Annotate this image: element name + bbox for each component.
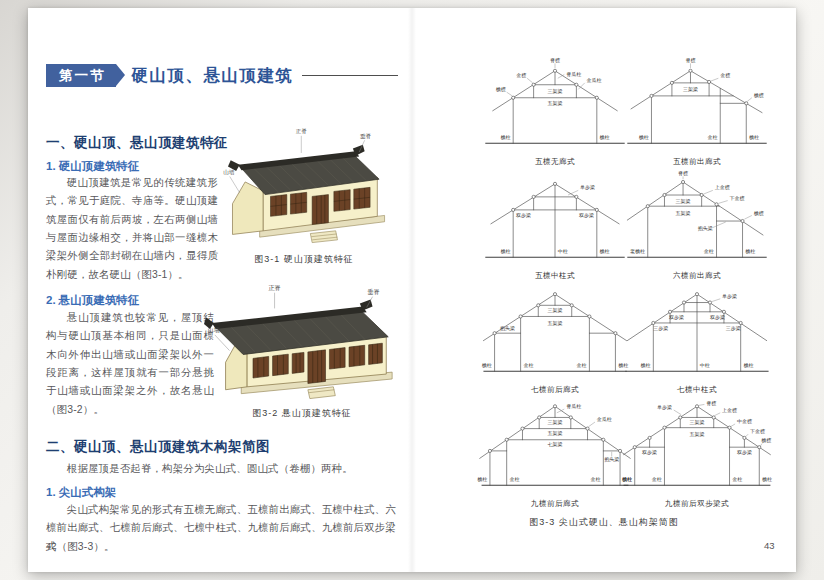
figure-3-2: 正脊 垂脊 山墙 图3-2 悬山顶建筑特征: [204, 280, 400, 420]
section-header: 第一节 硬山顶、悬山顶建筑: [46, 64, 398, 87]
label-1-step-beam: 单步梁: [657, 404, 672, 410]
label-1-step-beam: 单步梁: [580, 184, 595, 190]
label-2-step-beam: 双步梁: [516, 212, 531, 218]
label-eave-column: 檐柱: [641, 362, 651, 368]
label-eave-column: 檐柱: [622, 476, 632, 482]
left-page: 第一节 硬山顶、悬山顶建筑 一、硬山顶、悬山顶建筑特征 1. 硬山顶建筑特征 硬…: [28, 8, 412, 572]
truss-diagram-6-purlin-front-porch: 脊檩 上金檩 下金檩 檐檩 三架梁 五架梁 抱头梁 老檐柱 金柱 檐柱 六檩前出…: [618, 169, 776, 281]
label-ridge-purlin: 脊檩: [550, 57, 560, 63]
label-2-step-beam: 双步梁: [669, 314, 684, 320]
heading-features: 一、硬山顶、悬山顶建筑特征: [46, 134, 228, 152]
label-gable-wall: 山墙: [223, 169, 235, 176]
label-5-beam: 五架梁: [690, 431, 705, 437]
label-3-beam: 三架梁: [683, 86, 698, 92]
label-2-step-beam: 双步梁: [737, 449, 752, 455]
label-5-beam: 五架梁: [548, 100, 563, 106]
label-eave-purlin: 檐檩: [761, 437, 771, 443]
truss-drawing: 脊檩 上金檩 下金檩 檐檩 三架梁 五架梁 抱头梁 老檐柱 金柱 檐柱: [618, 169, 776, 266]
label-gold-column: 金柱: [523, 362, 533, 368]
label-main-ridge: 正脊: [269, 285, 281, 291]
paragraph-pointed-frame: 尖山式构架常见的形式有五檩无廊式、五檩前出廊式、五檩中柱式、六檩前出廊式、七檩前…: [46, 501, 396, 556]
figure-3-2-caption: 图3-2 悬山顶建筑特征: [204, 407, 400, 420]
label-ridge-purlin: 脊檩: [678, 170, 688, 176]
truss-diagram-7-purlin-center-column: 单步梁 双步梁 双步梁 三步梁 三步梁 檐柱 中柱 檐柱 七檩中柱式: [618, 283, 776, 395]
label-center-column: 中柱: [700, 362, 710, 368]
label-2-step-beam: 双步梁: [642, 449, 657, 455]
paragraph-overhanging-gable: 悬山顶建筑也较常见，屋顶结构与硬山顶基本相同，只是山面檩木向外伸出山墙或山面梁架…: [46, 309, 214, 419]
diagram-caption: 五檩中柱式: [476, 271, 634, 281]
label-ridge-purlin: 脊檩: [706, 400, 716, 406]
diagram-caption: 七檩中柱式: [618, 385, 776, 395]
diagram-caption: 五檩无廊式: [476, 157, 634, 167]
page-number-right: 43: [764, 540, 775, 551]
label-lower-gold-purlin: 下金檩: [750, 428, 765, 434]
label-3-beam: 三架梁: [548, 307, 563, 313]
label-5-beam: 五架梁: [548, 430, 563, 436]
label-upper-gold-purlin: 上金檩: [715, 184, 730, 190]
label-5-beam: 五架梁: [676, 210, 691, 216]
truss-drawing: 脊檩 单步梁 上金檩 中金檩 下金檩 檐檩 三架梁 五架梁 双步梁 双步梁 檐柱…: [618, 397, 776, 494]
label-upper-gold-purlin: 上金檩: [722, 407, 737, 413]
label-lower-gold-purlin: 下金檩: [730, 195, 745, 201]
label-3-beam: 三架梁: [676, 198, 691, 204]
truss-diagram-7-purlin-front-back-porch: 三架梁 五架梁 抱头梁 檐柱 金柱 金柱 檐柱 七檩前后廊式: [476, 283, 634, 395]
label-2-step-beam: 双步梁: [579, 212, 594, 218]
label-3-step-beam: 三步梁: [653, 325, 668, 331]
label-eave-column: 檐柱: [500, 134, 510, 140]
label-gold-column: 金柱: [591, 476, 601, 482]
subheading-hard-gable: 1. 硬山顶建筑特征: [46, 159, 139, 174]
label-eave-column: 檐柱: [762, 476, 772, 482]
section-title: 硬山顶、悬山顶建筑: [132, 65, 294, 87]
label-3-beam: 三架梁: [548, 88, 563, 94]
label-eave-column: 檐柱: [500, 248, 510, 254]
label-gable-wall: 山墙: [208, 327, 220, 333]
label-baotou-beam: 抱头梁: [698, 225, 713, 232]
label-eave-column: 檐柱: [482, 362, 492, 368]
page-number-left: 42: [46, 540, 57, 551]
label-5-beam: 五架梁: [548, 320, 563, 326]
label-eave-column: 檐柱: [743, 362, 753, 368]
label-eave-column: 檐柱: [745, 248, 755, 254]
label-eave-purlin: 檐檩: [496, 86, 506, 92]
label-gold-purlin: 金檩: [720, 72, 730, 78]
label-ridge-post: 脊瓜柱: [566, 403, 581, 409]
label-eave-column: 檐柱: [639, 134, 649, 140]
label-main-ridge: 正脊: [296, 128, 308, 134]
hard-gable-house-illustration: 正脊 垂脊 山墙: [218, 124, 390, 246]
diagram-caption: 七檩前后廊式: [476, 385, 634, 395]
label-baotou-beam: 抱头梁: [500, 325, 515, 332]
truss-diagram-5-purlin-center-column: 单步梁 双步梁 双步梁 檐柱 中柱 檐柱 五檩中柱式: [476, 169, 634, 281]
label-middle-gold-purlin: 中金檩: [737, 418, 752, 424]
label-eave-purlin: 檐檩: [754, 210, 764, 216]
truss-diagram-5-purlin-front-porch: 脊檩 金檩 檐檩 三架梁 檐柱 金柱 檐柱 五檩前出廊式: [618, 55, 776, 167]
label-baotou-beam: 抱头梁: [604, 456, 619, 463]
label-gold-column: 金柱: [732, 476, 742, 482]
truss-drawing: 单步梁 双步梁 双步梁 檐柱 中柱 檐柱: [476, 169, 634, 266]
label-gold-purlin: 金檩: [516, 72, 526, 78]
label-vertical-ridge: 垂脊: [367, 288, 379, 295]
label-vertical-ridge: 垂脊: [360, 133, 372, 139]
section-badge: 第一节: [46, 64, 116, 87]
label-eave-column: 檐柱: [477, 476, 487, 482]
label-3-beam: 三架梁: [548, 419, 563, 425]
truss-drawing: 三架梁 五架梁 抱头梁 檐柱 金柱 金柱 檐柱: [476, 283, 634, 380]
truss-diagram-9-purlin-double-step-beam: 脊檩 单步梁 上金檩 中金檩 下金檩 檐檩 三架梁 五架梁 双步梁 双步梁 檐柱…: [618, 397, 776, 509]
label-3-step-beam: 三步梁: [726, 325, 741, 331]
label-gold-column: 金柱: [509, 476, 519, 482]
label-ridge-post: 脊瓜柱: [566, 71, 581, 77]
page-fold: [408, 8, 416, 572]
book-spread: 第一节 硬山顶、悬山顶建筑 一、硬山顶、悬山顶建筑特征 1. 硬山顶建筑特征 硬…: [28, 8, 796, 572]
subheading-pointed-frame: 1. 尖山式构架: [46, 485, 116, 500]
paragraph-framework-intro: 根据屋顶是否起脊，构架分为尖山式、圆山式（卷棚）两种。: [46, 460, 396, 478]
label-eave-purlin: 檐檩: [754, 92, 764, 98]
label-eave-column: 檐柱: [600, 134, 610, 140]
label-7-beam: 七架梁: [548, 441, 563, 447]
right-page: 脊檩 脊瓜柱 金檩 檐檩 金瓜柱 三架梁 五架梁 檐柱 檐柱 五檩无廊式: [412, 8, 796, 572]
truss-diagram-9-purlin-front-back-porch: 脊瓜柱 金瓜柱 三架梁 五架梁 七架梁 抱头梁 檐柱 金柱 金柱 檐柱 九檩前后…: [476, 397, 634, 509]
label-center-column: 中柱: [558, 248, 568, 254]
truss-drawing: 脊檩 脊瓜柱 金檩 檐檩 金瓜柱 三架梁 五架梁 檐柱 檐柱: [476, 55, 634, 152]
truss-drawing: 脊瓜柱 金瓜柱 三架梁 五架梁 七架梁 抱头梁 檐柱 金柱 金柱 檐柱: [476, 397, 634, 494]
label-gold-post: 金瓜柱: [587, 77, 602, 83]
truss-drawing: 脊檩 金檩 檐檩 三架梁 檐柱 金柱 檐柱: [618, 55, 776, 152]
label-gold-post: 金瓜柱: [597, 416, 612, 422]
label-gold-column: 金柱: [577, 362, 587, 368]
paragraph-hard-gable: 硬山顶建筑是常见的传统建筑形式，常见于庭院、寺庙等。硬山顶建筑屋面仅有前后两坡，…: [46, 174, 218, 284]
truss-drawing: 单步梁 双步梁 双步梁 三步梁 三步梁 檐柱 中柱 檐柱: [618, 283, 776, 380]
figure-3-3-caption: 图3-3 尖山式硬山、悬山构架简图: [412, 516, 796, 529]
diagram-caption: 九檩前后双步梁式: [618, 499, 776, 509]
label-3-beam: 三架梁: [690, 419, 705, 425]
subheading-overhanging-gable: 2. 悬山顶建筑特征: [46, 293, 139, 308]
label-ridge-purlin: 脊檩: [685, 57, 695, 63]
label-gold-column: 金柱: [652, 476, 662, 482]
label-eave-column: 檐柱: [600, 248, 610, 254]
figure-3-1: 正脊 垂脊 山墙 图3-1 硬山顶建筑特征: [218, 124, 390, 266]
diagram-caption: 九檩前后廊式: [476, 499, 634, 509]
heading-framework: 二、硬山顶、悬山顶建筑木构架简图: [46, 438, 270, 456]
diagram-caption: 五檩前出廊式: [618, 157, 776, 167]
label-eave-column: 檐柱: [749, 134, 759, 140]
label-2-step-beam: 双步梁: [710, 314, 725, 320]
figure-3-1-caption: 图3-1 硬山顶建筑特征: [218, 253, 390, 266]
header-rule: [302, 75, 399, 76]
label-old-eave-column: 老檐柱: [630, 248, 645, 254]
label-gold-column: 金柱: [704, 248, 714, 254]
truss-diagram-5-purlin-no-porch: 脊檩 脊瓜柱 金檩 檐檩 金瓜柱 三架梁 五架梁 檐柱 檐柱 五檩无廊式: [476, 55, 634, 167]
label-gold-column: 金柱: [707, 134, 717, 140]
label-1-step-beam: 单步梁: [722, 293, 737, 299]
overhanging-gable-house-illustration: 正脊 垂脊 山墙: [204, 280, 400, 400]
diagram-caption: 六檩前出廊式: [618, 271, 776, 281]
